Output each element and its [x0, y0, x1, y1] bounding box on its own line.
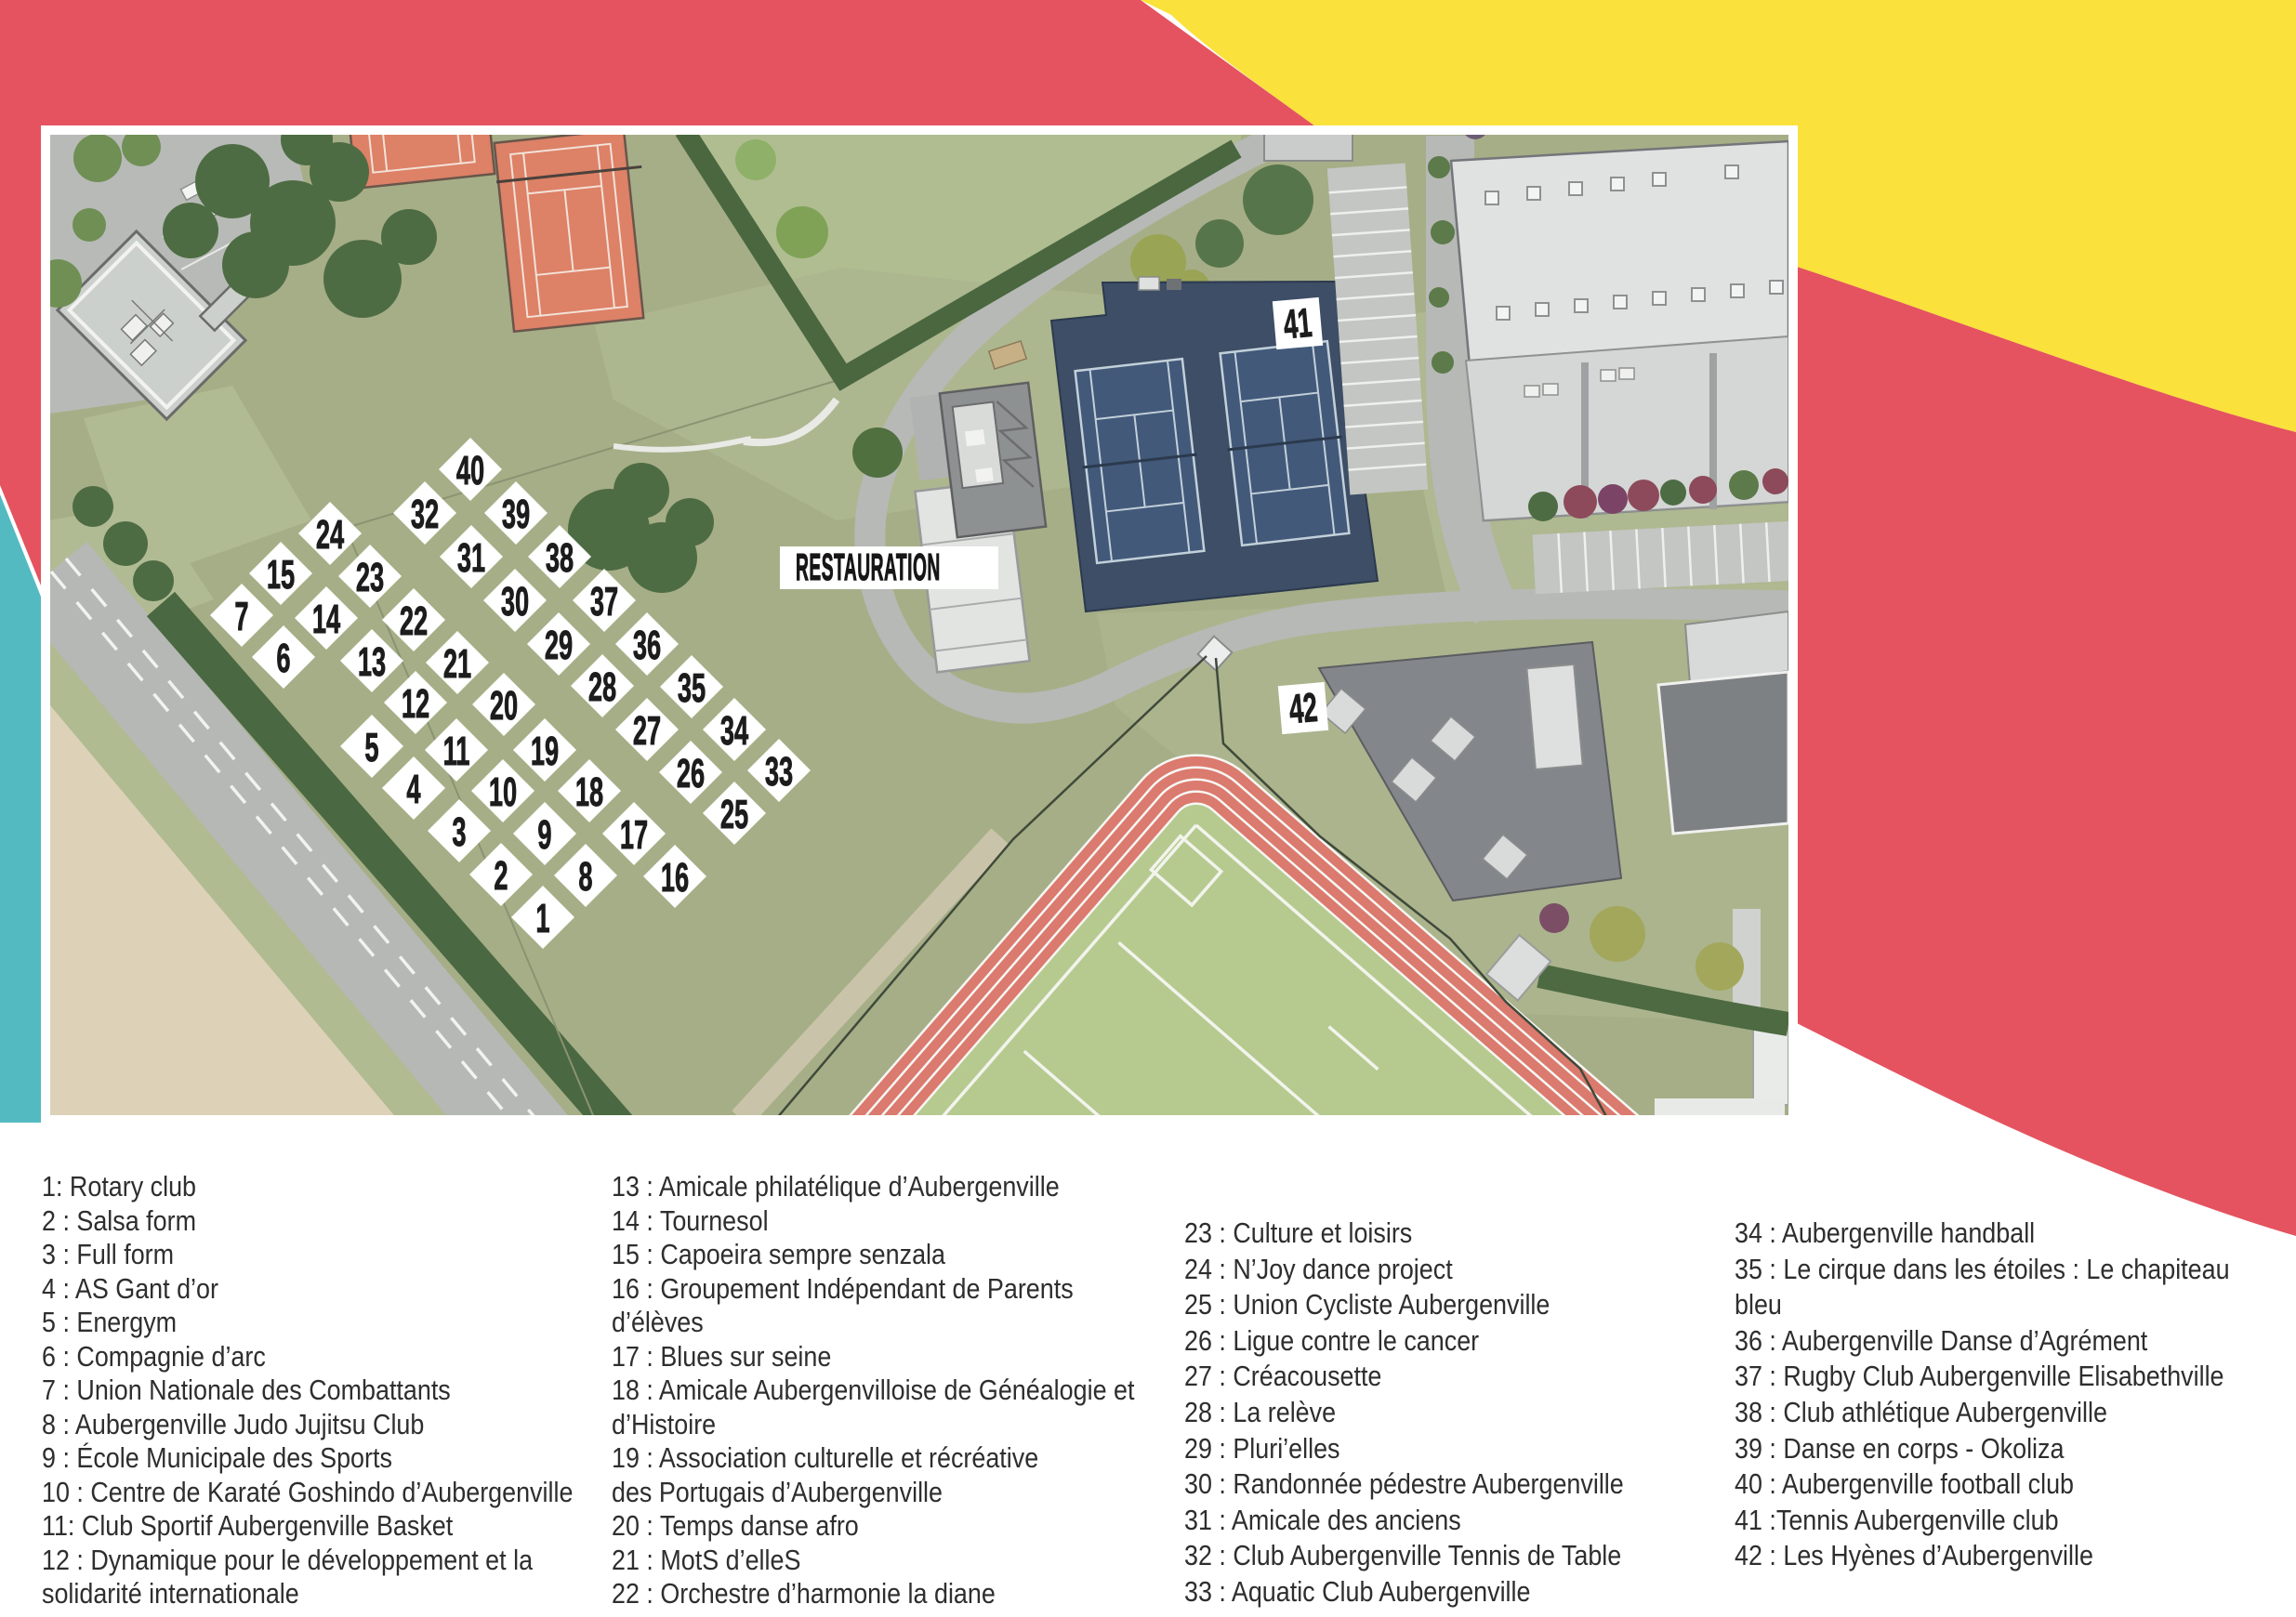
svg-text:6: 6: [276, 635, 290, 680]
svg-text:35: 35: [678, 664, 706, 710]
svg-text:26: 26: [677, 750, 705, 795]
svg-text:36: 36: [633, 622, 661, 667]
svg-text:19: 19: [531, 728, 559, 773]
svg-text:29: 29: [545, 622, 573, 667]
svg-text:30: 30: [501, 578, 529, 624]
svg-text:18: 18: [575, 769, 603, 814]
svg-text:31: 31: [457, 534, 485, 580]
svg-text:15: 15: [267, 551, 295, 597]
svg-text:13: 13: [358, 638, 386, 684]
svg-text:7: 7: [234, 593, 248, 638]
svg-text:16: 16: [661, 854, 689, 900]
svg-text:20: 20: [490, 682, 518, 728]
svg-text:RESTAURATION: RESTAURATION: [796, 546, 941, 588]
svg-text:12: 12: [402, 680, 429, 726]
svg-text:1: 1: [535, 895, 549, 940]
svg-text:2: 2: [494, 852, 508, 898]
svg-text:22: 22: [400, 598, 428, 643]
svg-text:21: 21: [443, 640, 471, 686]
svg-text:24: 24: [316, 511, 345, 557]
svg-text:40: 40: [456, 447, 484, 493]
svg-text:5: 5: [364, 724, 378, 769]
svg-text:10: 10: [489, 769, 517, 814]
svg-text:34: 34: [720, 707, 749, 753]
svg-text:38: 38: [546, 534, 574, 580]
svg-text:14: 14: [312, 596, 341, 641]
svg-text:8: 8: [578, 853, 592, 899]
svg-text:41: 41: [1282, 299, 1314, 348]
svg-text:27: 27: [633, 707, 661, 753]
svg-text:23: 23: [356, 554, 384, 599]
svg-text:9: 9: [537, 811, 551, 857]
svg-text:4: 4: [406, 766, 421, 811]
svg-text:17: 17: [620, 811, 648, 857]
svg-text:11: 11: [443, 728, 470, 773]
svg-text:39: 39: [502, 491, 530, 536]
svg-text:42: 42: [1287, 684, 1320, 732]
svg-text:28: 28: [588, 664, 616, 709]
svg-text:3: 3: [452, 808, 466, 854]
svg-text:32: 32: [411, 491, 439, 536]
svg-text:37: 37: [590, 578, 618, 624]
svg-text:25: 25: [720, 791, 748, 836]
svg-text:33: 33: [765, 748, 793, 794]
